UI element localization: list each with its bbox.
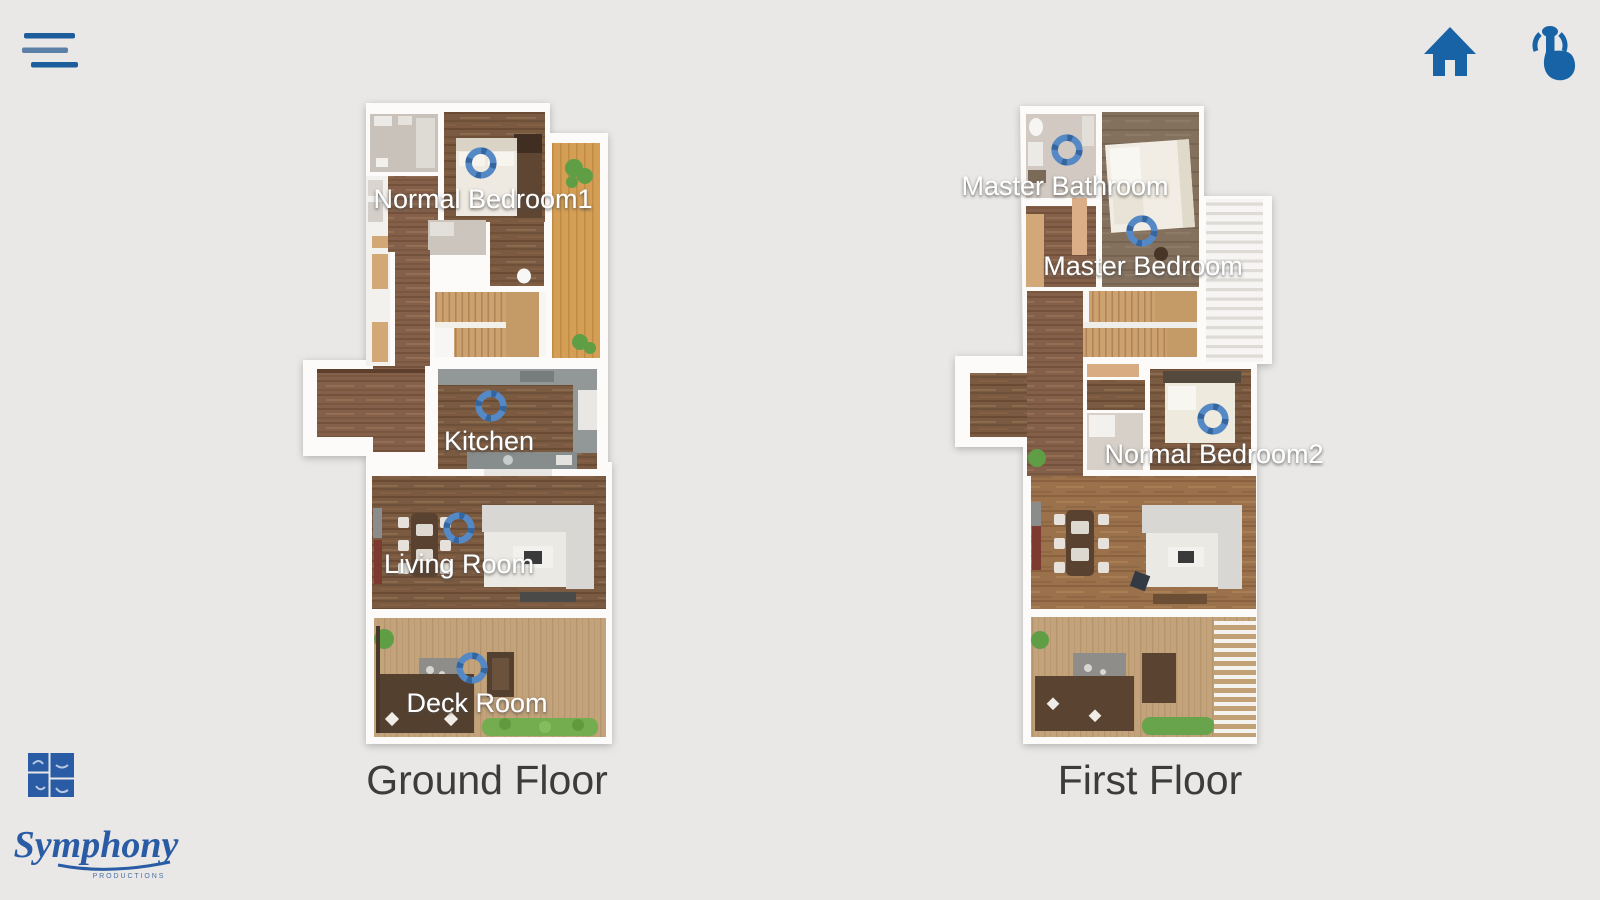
- svg-text:Master Bedroom: Master Bedroom: [1043, 251, 1243, 281]
- svg-text:Ground Floor: Ground Floor: [366, 757, 608, 803]
- svg-text:Symphony: Symphony: [14, 824, 179, 866]
- svg-text:Deck Room: Deck Room: [406, 688, 547, 718]
- svg-text:First Floor: First Floor: [1058, 757, 1243, 803]
- svg-text:Normal Bedroom2: Normal Bedroom2: [1104, 439, 1323, 469]
- svg-text:Kitchen: Kitchen: [444, 426, 534, 456]
- svg-text:P R O D U C T I O N S: P R O D U C T I O N S: [93, 873, 164, 880]
- svg-text:Master Bathroom: Master Bathroom: [961, 171, 1168, 201]
- svg-text:Living Room: Living Room: [384, 549, 534, 579]
- svg-text:Normal Bedroom1: Normal Bedroom1: [373, 184, 592, 214]
